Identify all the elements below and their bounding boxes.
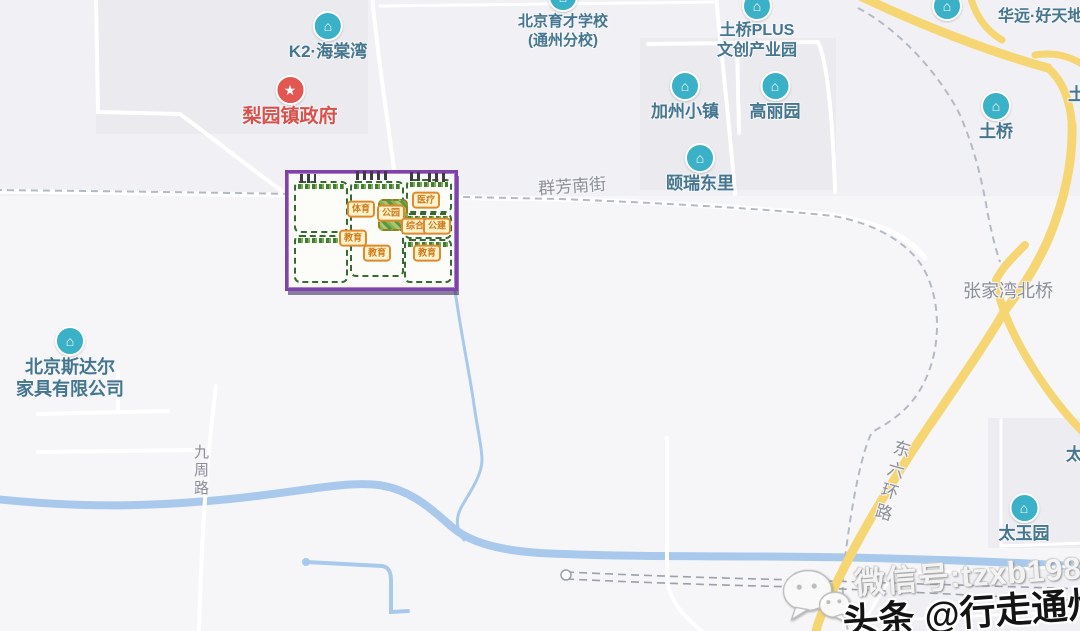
poi-label: 梨园镇政府 [242, 106, 337, 128]
building-icon: ⌂ [55, 326, 85, 356]
occluded-label-fragment [410, 172, 422, 181]
building-icon: ⌂ [742, 0, 772, 21]
poi-label: 土桥PLUS [720, 22, 795, 41]
poi-label-huayuan: 华远·好天地 [998, 2, 1080, 26]
poi-label: K2·海棠湾 [289, 42, 367, 62]
parcel-label-medical: 医疗 [412, 192, 440, 209]
building-icon: ⌂ [685, 143, 715, 173]
building-icon: ⌂ [313, 11, 343, 41]
map-canvas[interactable]: ⌂ K2·海棠湾 ★ 梨园镇政府 ⌂ 北京育才学校 (通州分校) ⌂ 土桥PLU… [0, 0, 1080, 631]
parcel-label-education: 教育 [363, 245, 391, 262]
poi-gaoliyuan[interactable]: ⌂ 高丽园 [750, 71, 801, 122]
poi-label: 北京斯达尔 [25, 357, 115, 378]
building-icon: ⌂ [548, 0, 578, 12]
poi-label: 加州小镇 [651, 102, 719, 122]
map-base-layer [0, 0, 1080, 631]
building-icon: ⌂ [932, 0, 962, 21]
parcel-label-education: 教育 [413, 245, 441, 262]
planning-overlay: 体育 公园 医疗 综合 公建 教育 教育 教育 [285, 170, 458, 291]
poi-label: 高丽园 [750, 102, 801, 122]
occluded-label-fragment [300, 174, 316, 183]
poi-label: 太玉园 [999, 524, 1050, 544]
road-label-qunfang-south-street: 群芳南街 [537, 170, 607, 200]
occluded-label-fragment [356, 171, 390, 180]
poi-label: 颐瑞东里 [666, 174, 734, 194]
poi-label-line2: 文创产业园 [717, 42, 797, 61]
road-label-jiuzhou-road: 九周路 [190, 444, 211, 498]
poi-tuqiao-plus-park[interactable]: ⌂ 土桥PLUS 文创产业园 [717, 0, 797, 61]
partial-poi-label-right-edge: 土 [1068, 80, 1080, 105]
poi-label: 北京育才学校 [518, 13, 608, 31]
poi-yirui-dongli[interactable]: ⌂ 颐瑞东里 [666, 143, 734, 194]
occluded-label-fragment [428, 173, 448, 182]
poi-huayuan-haotiandi[interactable]: ⌂ [932, 0, 962, 21]
building-icon: ⌂ [981, 91, 1011, 121]
poi-label: 土桥 [979, 122, 1013, 142]
building-icon: ⌂ [670, 71, 700, 101]
poi-label-line2: (通州分校) [528, 32, 598, 50]
poi-stdar-furniture[interactable]: ⌂ 北京斯达尔 家具有限公司 [16, 326, 124, 400]
poi-yucai-school[interactable]: ⌂ 北京育才学校 (通州分校) [518, 0, 608, 49]
poi-jiazhou-town[interactable]: ⌂ 加州小镇 [651, 71, 719, 122]
parcel-label-education: 教育 [339, 230, 367, 247]
road-label-zhangjiawan-north-bridge: 张家湾北桥 [963, 277, 1053, 303]
poi-label-line2: 家具有限公司 [16, 379, 124, 400]
partial-poi-label-right-edge-2: 太 [1066, 440, 1080, 465]
poi-k2-haitangwan[interactable]: ⌂ K2·海棠湾 [289, 11, 367, 62]
parcel-label-public: 公建 [423, 218, 451, 235]
star-icon: ★ [275, 75, 305, 105]
building-icon: ⌂ [1009, 493, 1039, 523]
poi-liyuan-town-government[interactable]: ★ 梨园镇政府 [242, 75, 337, 128]
poi-tuqiao-station[interactable]: ⌂ 土桥 [979, 91, 1013, 142]
plan-parcel [294, 181, 348, 233]
poi-taiyuyuan[interactable]: ⌂ 太玉园 [999, 493, 1050, 544]
parcel-label-sports: 体育 [347, 201, 375, 218]
building-icon: ⌂ [760, 71, 790, 101]
